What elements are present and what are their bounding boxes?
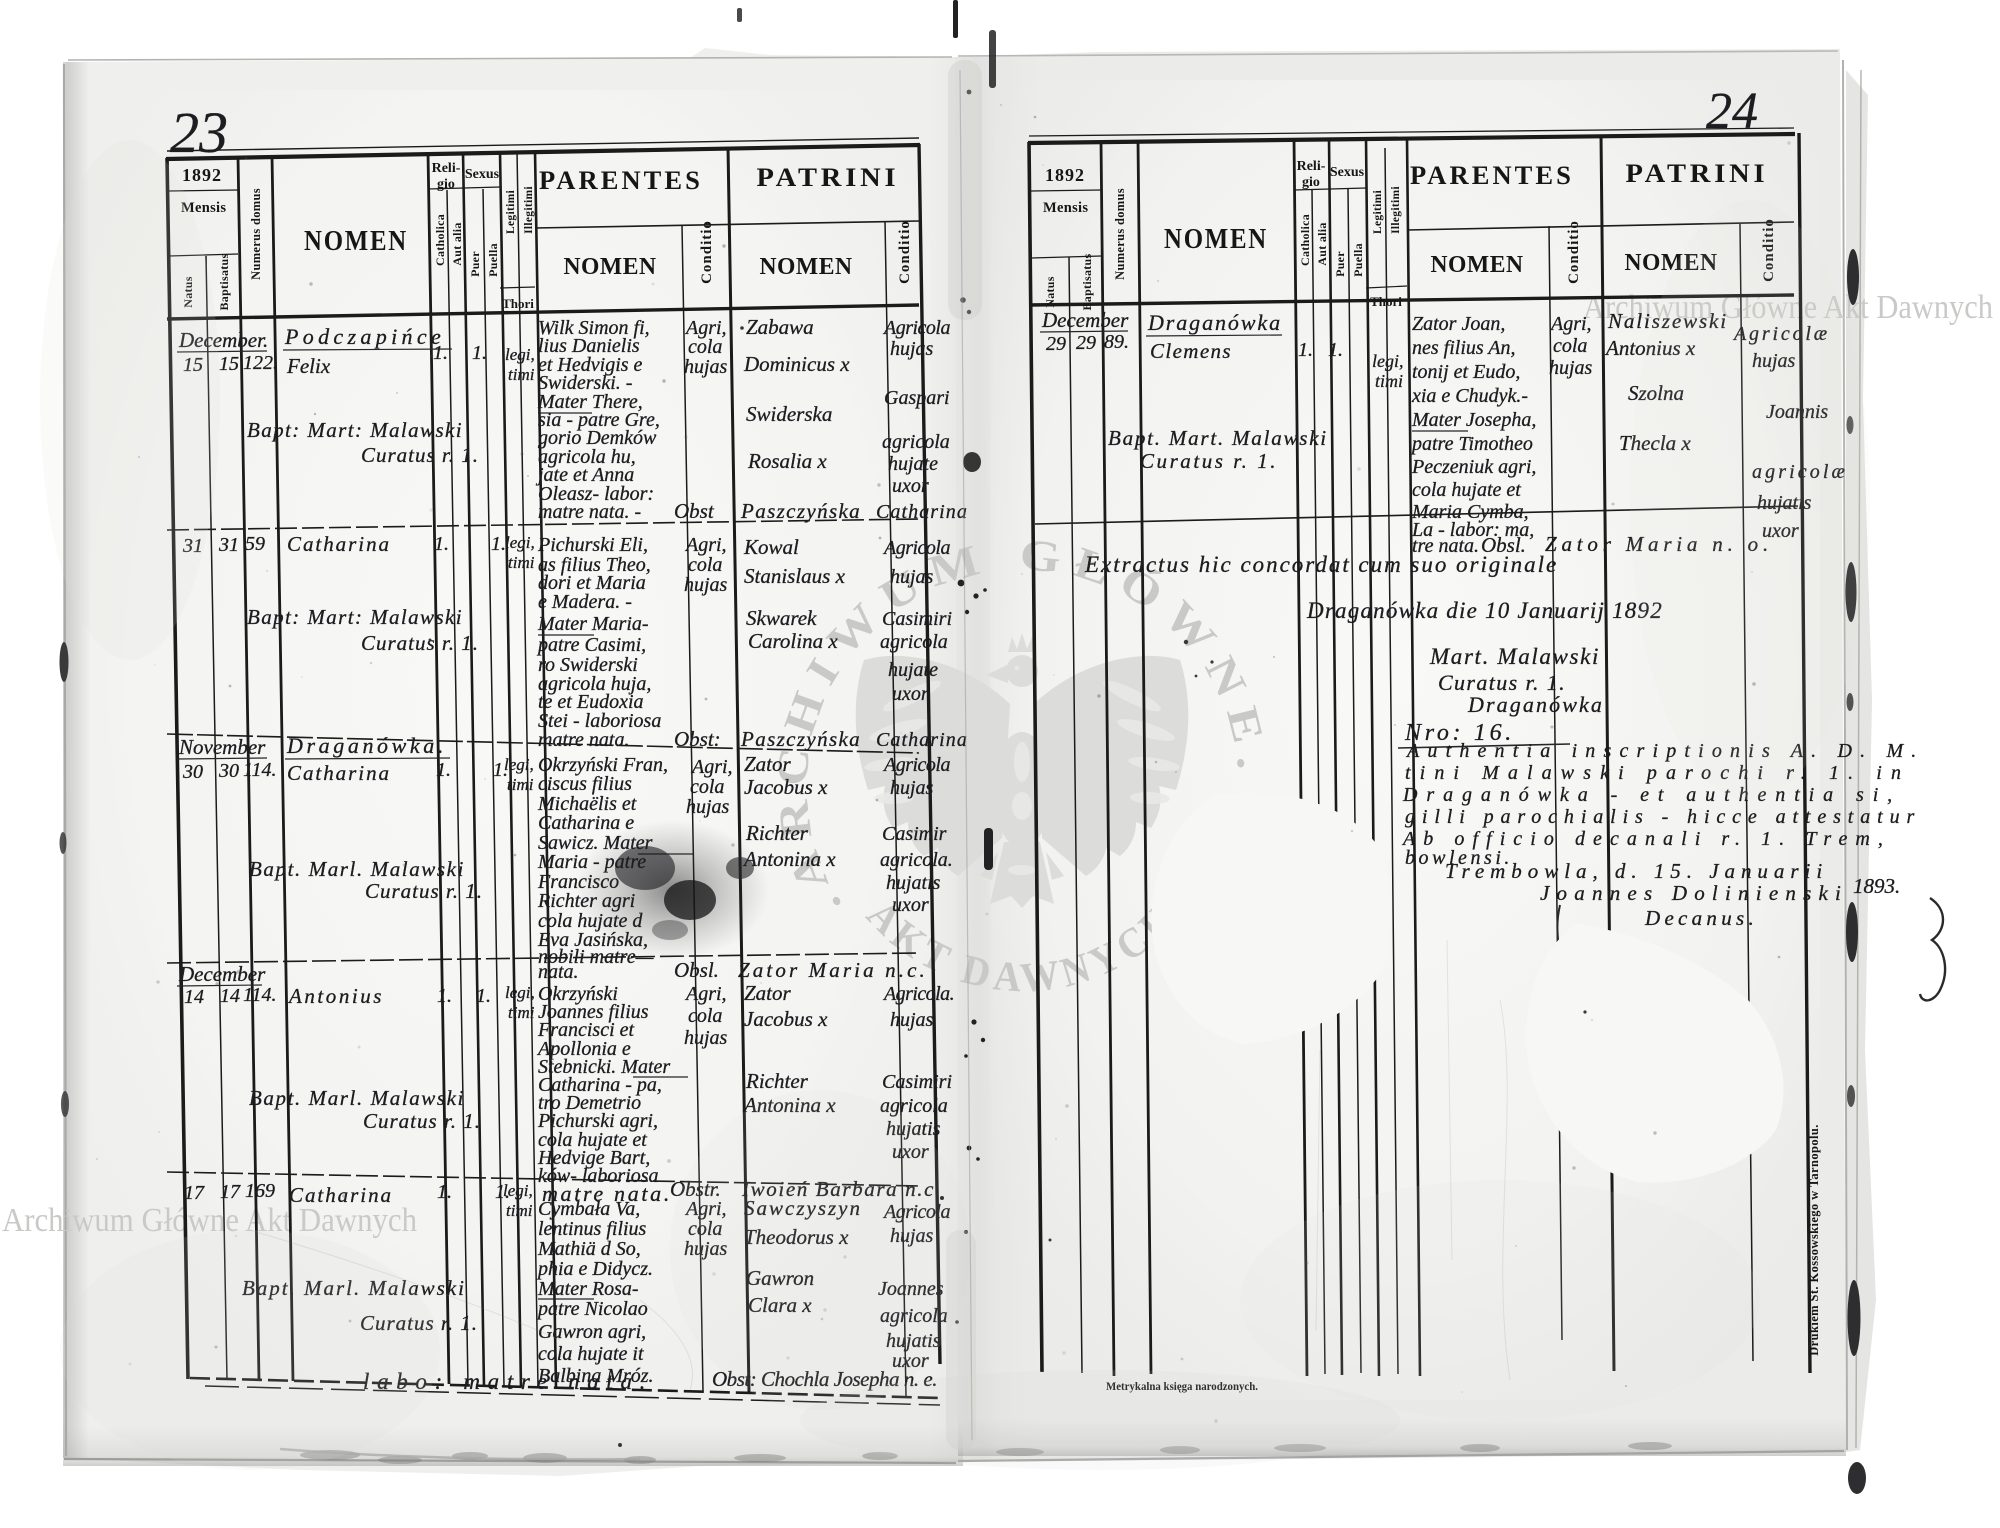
svg-text:Joannes Dolinienski: Joannes Dolinienski: [1540, 881, 1848, 905]
svg-text:Bapt. Marl. Malawski: Bapt. Marl. Malawski: [249, 857, 465, 881]
svg-text:matre nata. -: matre nata. -: [538, 501, 641, 523]
svg-text:tini Malawski parochi r. 1. in: tini Malawski parochi r. 1. in: [1405, 762, 1910, 784]
svg-text:Puella: Puella: [1351, 243, 1365, 277]
svg-text:23: 23: [170, 100, 228, 165]
svg-text:Aut alia: Aut alia: [450, 222, 464, 265]
svg-text:Casimir: Casimir: [882, 823, 947, 845]
svg-text:patre Nicolao: patre Nicolao: [536, 1298, 648, 1320]
svg-text:legi,: legi,: [505, 533, 535, 552]
svg-text:NOMEN: NOMEN: [760, 254, 853, 280]
svg-text:Curatus r. 1.: Curatus r. 1.: [365, 879, 483, 903]
svg-text:gilli parochialis - hicce atte: gilli parochialis - hicce attestatur: [1405, 806, 1921, 828]
svg-text:Illegitimi: Illegitimi: [523, 186, 535, 234]
svg-text:122.: 122.: [243, 352, 278, 374]
svg-text:agricola: agricola: [880, 631, 948, 653]
svg-text:cola hujate et: cola hujate et: [1412, 479, 1521, 501]
svg-text:NOMEN: NOMEN: [304, 226, 408, 257]
svg-text:1.: 1.: [433, 342, 448, 364]
svg-text:Sexus: Sexus: [465, 167, 500, 182]
svg-text:59: 59: [245, 533, 265, 555]
svg-text:NOMEN: NOMEN: [1431, 252, 1524, 278]
svg-text:Sexus: Sexus: [1330, 165, 1365, 180]
svg-text:Bapt. Marl. Malawski: Bapt. Marl. Malawski: [249, 1086, 465, 1110]
svg-text:Mater Josepha,: Mater Josepha,: [1411, 409, 1536, 431]
svg-text:cola hujate it: cola hujate it: [538, 1343, 644, 1365]
svg-text:PARENTES: PARENTES: [539, 166, 703, 195]
svg-text:Baptisatus: Baptisatus: [1080, 253, 1094, 310]
svg-text:Catharina: Catharina: [876, 501, 968, 523]
svg-text:hujas: hujas: [890, 338, 934, 360]
svg-text:cola: cola: [688, 554, 722, 576]
svg-text:Catharina: Catharina: [287, 532, 391, 556]
svg-text:Agricola: Agricola: [882, 317, 950, 339]
svg-text:matre nata.: matre nata.: [538, 729, 629, 751]
svg-text:1.: 1.: [434, 533, 449, 555]
svg-text:hujas: hujas: [890, 777, 934, 799]
svg-text:Natus: Natus: [1043, 276, 1057, 308]
svg-text:uxor: uxor: [892, 475, 929, 497]
svg-text:1.: 1.: [491, 533, 506, 555]
svg-text:Obst: Obst: [674, 499, 715, 523]
svg-text:nata.: nata.: [538, 961, 579, 983]
svg-text:xia e Chudyk.-: xia e Chudyk.-: [1411, 385, 1528, 407]
svg-text:legi,: legi,: [505, 345, 535, 364]
svg-text:Richter: Richter: [745, 1069, 809, 1093]
svg-text:hujate: hujate: [888, 453, 938, 475]
svg-text:Draganówka: Draganówka: [1467, 692, 1604, 717]
svg-text:15: 15: [219, 353, 239, 375]
svg-text:Reli-: Reli-: [432, 161, 461, 176]
svg-text:Antonius: Antonius: [287, 984, 384, 1008]
svg-text:uxor: uxor: [892, 683, 929, 705]
svg-text:Extractus hic concordat cum su: Extractus hic concordat cum suo original…: [1084, 552, 1558, 577]
svg-text:1.: 1.: [1298, 339, 1313, 361]
svg-text:Bapt: Mart: Malawski: Bapt: Mart: Malawski: [247, 418, 463, 442]
svg-text:1.: 1.: [1328, 339, 1343, 361]
svg-text:Numerus domus: Numerus domus: [249, 188, 263, 280]
svg-text:ciscus filius: ciscus filius: [538, 773, 632, 795]
svg-text:Mart. Malawski: Mart. Malawski: [1429, 644, 1600, 669]
svg-text:Zator Maria n.c.: Zator Maria n.c.: [738, 958, 928, 982]
svg-text:Dominicus x: Dominicus x: [743, 352, 850, 376]
svg-text:Conditio: Conditio: [1566, 220, 1582, 284]
svg-text:Casimiri: Casimiri: [882, 1071, 952, 1093]
svg-text:Bapt: Mart: Malawski: Bapt: Mart: Malawski: [247, 605, 463, 629]
svg-text:phia e Didycz.: phia e Didycz.: [536, 1258, 653, 1280]
svg-text:17: 17: [220, 1181, 241, 1203]
svg-text:Mathiä d So,: Mathiä d So,: [537, 1238, 641, 1260]
svg-text:Thori: Thori: [1370, 294, 1402, 309]
svg-text:timi: timi: [1375, 371, 1403, 391]
svg-text:Baptisatus: Baptisatus: [217, 253, 231, 310]
svg-text:cola: cola: [690, 776, 724, 798]
svg-text:1.: 1.: [472, 342, 487, 364]
svg-text:NOMEN: NOMEN: [564, 254, 657, 280]
svg-text:Carolina x: Carolina x: [748, 629, 838, 653]
svg-text:timi: timi: [508, 365, 535, 384]
svg-text:Obsl.: Obsl.: [674, 958, 719, 982]
svg-text:Agri,: Agri,: [690, 756, 733, 778]
svg-text:Agricola.: Agricola.: [882, 983, 954, 1005]
svg-text:hujatis: hujatis: [886, 872, 941, 894]
svg-text:Decanus.: Decanus.: [1644, 906, 1758, 930]
svg-text:30: 30: [182, 761, 203, 783]
svg-text:Conditio: Conditio: [699, 220, 715, 284]
svg-text:Mensis: Mensis: [1043, 200, 1088, 216]
svg-text:Catharina e: Catharina e: [538, 812, 634, 834]
svg-text:Jacobus x: Jacobus x: [744, 775, 828, 799]
svg-text:Agri,: Agri,: [1549, 313, 1592, 335]
svg-text:cola: cola: [688, 336, 722, 358]
svg-text:1.: 1.: [437, 1181, 452, 1203]
svg-text:29: 29: [1046, 333, 1066, 355]
svg-text:hujas: hujas: [1549, 357, 1593, 379]
svg-text:89.: 89.: [1104, 331, 1129, 353]
svg-text:Aut alia: Aut alia: [1315, 222, 1329, 265]
svg-text:Pichurski Eli,: Pichurski Eli,: [537, 534, 648, 556]
svg-text:Thori: Thori: [502, 296, 534, 311]
svg-text:Authentia inscriptionis A. D.: Authentia inscriptionis A. D. M.: [1405, 740, 1925, 762]
svg-text:timi: timi: [506, 1201, 533, 1220]
svg-text:patre Timotheo: patre Timotheo: [1410, 433, 1533, 455]
svg-text:Stanislaus x: Stanislaus x: [744, 564, 846, 588]
svg-text:uxor: uxor: [892, 894, 929, 916]
svg-text:Puer: Puer: [1333, 251, 1347, 277]
svg-text:Gaspari: Gaspari: [884, 387, 950, 409]
svg-text:Zator: Zator: [744, 981, 792, 1005]
svg-text:Illegitimi: Illegitimi: [1390, 186, 1402, 234]
svg-text:legi,: legi,: [504, 755, 534, 774]
svg-text:1.: 1.: [437, 985, 452, 1007]
svg-text:Curatus r. 1.: Curatus r. 1.: [361, 443, 479, 467]
svg-text:29: 29: [1076, 332, 1096, 354]
svg-text:Zator: Zator: [744, 752, 792, 776]
svg-text:Curatus r. 1.: Curatus r. 1.: [361, 631, 479, 655]
svg-text:cola: cola: [688, 1005, 722, 1027]
svg-text:Skwarek: Skwarek: [746, 606, 817, 630]
svg-text:Mater Rosa-: Mater Rosa-: [537, 1278, 639, 1300]
svg-text:hujas: hujas: [684, 574, 728, 596]
svg-text:Trembowla, d. 15. Januarii: Trembowla, d. 15. Januarii: [1445, 859, 1828, 883]
svg-text:NOMEN: NOMEN: [1164, 224, 1268, 255]
svg-text:Kowal: Kowal: [743, 535, 799, 559]
svg-text:114.: 114.: [243, 984, 277, 1006]
svg-text:hujas: hujas: [890, 566, 934, 588]
svg-text:Cymbała Va,: Cymbała Va,: [538, 1198, 640, 1220]
svg-text:1893.: 1893.: [1853, 874, 1900, 898]
svg-text:e Madera. -: e Madera. -: [538, 591, 632, 613]
svg-text:Felix: Felix: [286, 354, 331, 378]
svg-text:lentinus filius: lentinus filius: [538, 1218, 647, 1240]
svg-text:gio: gio: [437, 177, 455, 192]
svg-text:agricola: agricola: [882, 431, 950, 453]
svg-text:Puella: Puella: [486, 243, 500, 277]
svg-text:hujas: hujas: [686, 796, 730, 818]
svg-text:Paszczyńska: Paszczyńska: [740, 727, 861, 751]
svg-text:Catholica: Catholica: [1298, 214, 1312, 266]
svg-text:17: 17: [184, 1182, 205, 1204]
svg-text:patre Casimi,: patre Casimi,: [536, 634, 646, 656]
svg-text:Mater Maria-: Mater Maria-: [537, 613, 649, 635]
svg-text:Draganówka: Draganówka: [1147, 310, 1282, 335]
svg-text:14: 14: [184, 986, 204, 1008]
svg-text:tonij et Eudo,: tonij et Eudo,: [1412, 361, 1520, 383]
svg-text:timi: timi: [508, 1003, 535, 1022]
svg-text:nes filius An,: nes filius An,: [1412, 337, 1516, 359]
svg-text:Catharina: Catharina: [876, 729, 968, 751]
svg-text:Draganówka die 10 Januarij 189: Draganówka die 10 Januarij 1892: [1306, 598, 1663, 623]
svg-text:Numerus domus: Numerus domus: [1113, 188, 1127, 280]
svg-text:Agri,: Agri,: [684, 534, 727, 556]
svg-text:Legitimi: Legitimi: [505, 190, 517, 234]
svg-text:30: 30: [218, 760, 239, 782]
svg-text:31: 31: [218, 534, 239, 556]
svg-text:Curatus r. 1.: Curatus r. 1.: [1140, 449, 1278, 473]
svg-text:Bapt. Mart. Malawski: Bapt. Mart. Malawski: [1108, 426, 1328, 450]
svg-text:Draganówka - et authentia si,: Draganówka - et authentia si,: [1402, 784, 1901, 806]
svg-text:Zator Joan,: Zator Joan,: [1412, 313, 1505, 335]
svg-text:114.: 114.: [243, 759, 277, 781]
svg-text:legi,: legi,: [505, 983, 535, 1002]
svg-text:legi,: legi,: [503, 1181, 533, 1200]
svg-text:agricola.: agricola.: [880, 849, 953, 871]
svg-text:Draganówka.: Draganówka.: [286, 733, 447, 758]
svg-text:Jacobus x: Jacobus x: [744, 1007, 828, 1031]
svg-text:Agricola: Agricola: [882, 537, 950, 559]
svg-text:24: 24: [1706, 83, 1758, 140]
svg-text:Catharina: Catharina: [289, 1183, 393, 1207]
svg-text:legi,: legi,: [1372, 351, 1404, 371]
svg-text:Agri,: Agri,: [684, 983, 727, 1005]
svg-text:gio: gio: [1302, 175, 1320, 190]
svg-text:timi: timi: [507, 775, 534, 794]
svg-text:Peczeniuk agri,: Peczeniuk agri,: [1411, 456, 1536, 478]
svg-text:Zabawa: Zabawa: [746, 315, 814, 339]
svg-text:PATRINI: PATRINI: [1626, 159, 1769, 188]
svg-text:Swiderska: Swiderska: [746, 402, 832, 426]
svg-text:hujate: hujate: [888, 659, 938, 681]
svg-text:Puer: Puer: [468, 251, 482, 277]
svg-text:1.: 1.: [476, 985, 491, 1007]
svg-text:hujas: hujas: [890, 1009, 934, 1031]
svg-text:cola: cola: [1553, 335, 1587, 357]
svg-text:1892: 1892: [1045, 165, 1085, 185]
svg-text:December: December: [178, 962, 266, 986]
svg-text:Podczapińce: Podczapińce: [284, 324, 445, 349]
svg-text:169: 169: [245, 1180, 275, 1202]
svg-text:Catharina: Catharina: [287, 761, 391, 785]
svg-text:Agricola: Agricola: [882, 754, 950, 776]
svg-text:Reli-: Reli-: [1297, 159, 1326, 174]
svg-text:Richter: Richter: [745, 821, 809, 845]
svg-text:Clemens: Clemens: [1150, 339, 1232, 363]
svg-text:1892: 1892: [182, 165, 222, 185]
svg-text:timi: timi: [508, 553, 535, 572]
svg-text:Drukiem St. Kossowskiego w Tar: Drukiem St. Kossowskiego w Tarnopolu.: [1807, 1124, 1821, 1356]
svg-text:Catholica: Catholica: [433, 214, 447, 266]
svg-text:hujas: hujas: [684, 356, 728, 378]
svg-text:Gawron agri,: Gawron agri,: [538, 1321, 646, 1343]
svg-text:Paszczyńska: Paszczyńska: [740, 499, 861, 523]
svg-text:PARENTES: PARENTES: [1410, 161, 1574, 190]
svg-text:November: November: [178, 735, 266, 759]
svg-text:hujas: hujas: [684, 1027, 728, 1049]
svg-text:December: December: [1041, 308, 1129, 332]
svg-text:Legitimi: Legitimi: [1372, 190, 1384, 234]
svg-text:Conditio: Conditio: [897, 220, 913, 284]
svg-text:Casimiri: Casimiri: [882, 608, 952, 630]
svg-text:14: 14: [220, 985, 240, 1007]
svg-text:Rosalia x: Rosalia x: [747, 449, 827, 473]
svg-text:1.: 1.: [436, 759, 451, 781]
svg-text:Obst:: Obst:: [674, 727, 721, 751]
svg-text:PATRINI: PATRINI: [757, 163, 900, 192]
